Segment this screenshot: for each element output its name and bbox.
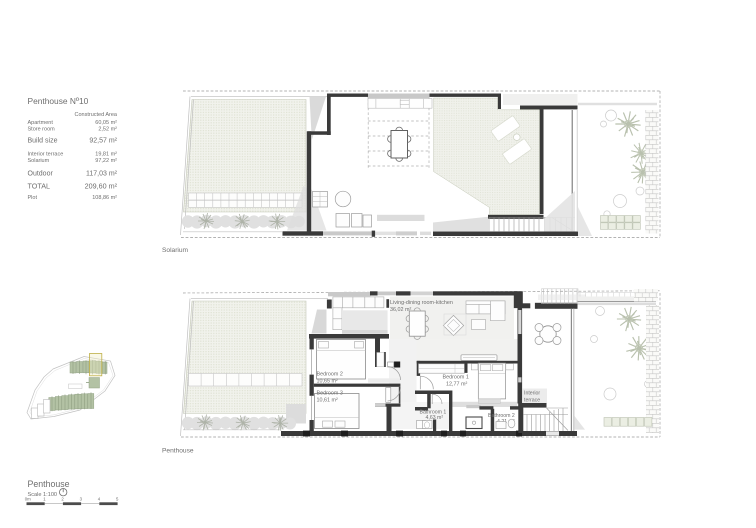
svg-text:10,65 m²: 10,65 m²	[317, 378, 338, 384]
svg-text:108,86 m²: 108,86 m²	[92, 195, 117, 201]
svg-text:97,22 m²: 97,22 m²	[95, 158, 117, 164]
svg-text:Bedroom 3: Bedroom 3	[317, 391, 343, 397]
svg-text:19,81 m²: 19,81 m²	[95, 152, 117, 158]
svg-text:Penthouse: Penthouse	[162, 447, 194, 454]
svg-text:12,77 m²: 12,77 m²	[446, 382, 467, 388]
svg-text:117,03 m²: 117,03 m²	[86, 171, 118, 178]
svg-text:Penthouse: Penthouse	[28, 479, 70, 489]
svg-text:Store room: Store room	[28, 127, 56, 133]
svg-text:Living-dining room-kitchen: Living-dining room-kitchen	[390, 300, 453, 306]
svg-text:Outdoor: Outdoor	[28, 171, 54, 178]
svg-text:92,57 m²: 92,57 m²	[89, 138, 117, 145]
svg-text:Solarium: Solarium	[28, 158, 50, 164]
svg-text:Constructed Area: Constructed Area	[75, 112, 118, 118]
svg-text:36,02 m²: 36,02 m²	[390, 307, 411, 313]
svg-text:TOTAL: TOTAL	[28, 182, 51, 191]
svg-text:terrace: terrace	[524, 398, 540, 404]
svg-text:60,05 m²: 60,05 m²	[95, 120, 117, 126]
svg-text:2,52 m²: 2,52 m²	[98, 127, 117, 133]
svg-text:Solarium: Solarium	[162, 247, 189, 254]
svg-text:Bedroom 2: Bedroom 2	[317, 372, 343, 378]
svg-text:Apartment: Apartment	[28, 120, 54, 126]
svg-text:Penthouse Nº10: Penthouse Nº10	[28, 96, 89, 106]
svg-text:Build size: Build size	[28, 138, 58, 145]
svg-text:Interior: Interior	[524, 391, 540, 397]
svg-text:0m: 0m	[25, 497, 31, 502]
svg-text:Bedroom 1: Bedroom 1	[443, 375, 469, 381]
svg-text:209,60 m²: 209,60 m²	[85, 182, 118, 191]
svg-text:Interior terrace: Interior terrace	[28, 152, 64, 158]
svg-text:Plot: Plot	[28, 195, 38, 201]
svg-text:10,61 m²: 10,61 m²	[317, 398, 338, 404]
